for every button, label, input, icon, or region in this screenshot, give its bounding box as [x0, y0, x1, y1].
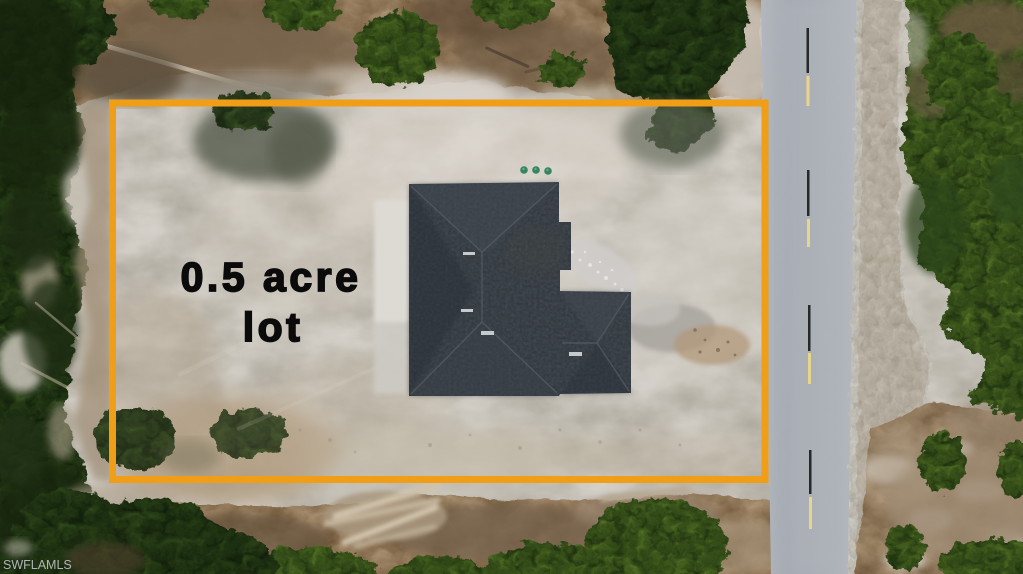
svg-text:SWFLAMLS: SWFLAMLS — [3, 558, 72, 572]
svg-text:lot: lot — [243, 304, 304, 350]
svg-text:0.5 acre: 0.5 acre — [181, 254, 362, 300]
